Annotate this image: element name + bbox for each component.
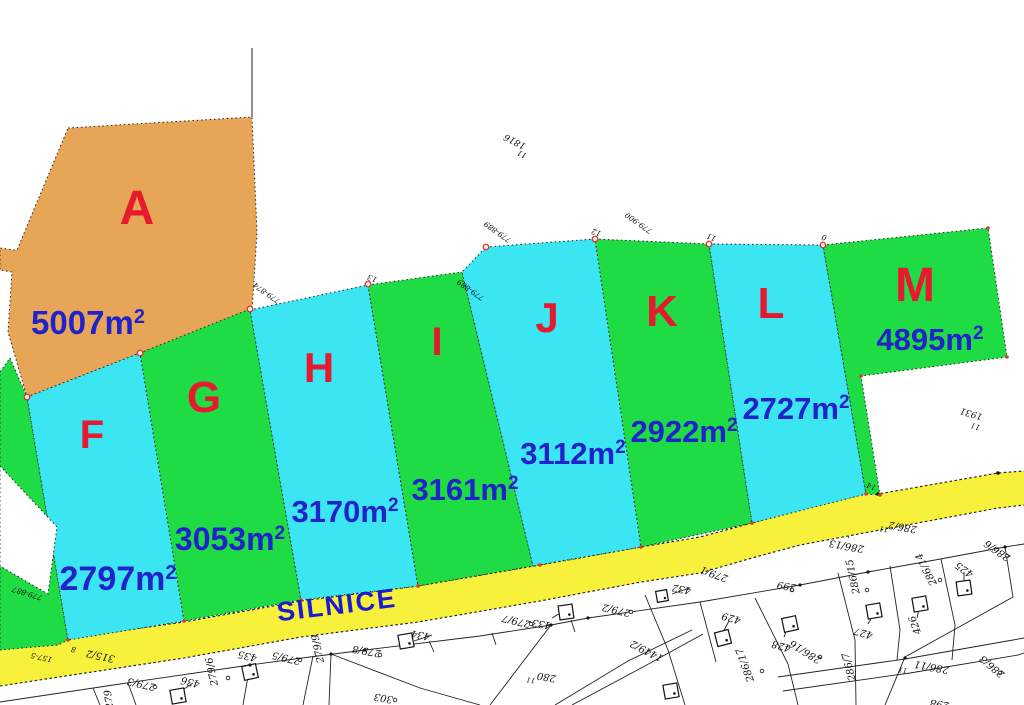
plot-i-letter: I — [431, 320, 442, 364]
cadastral-label: 286/6 — [982, 537, 1013, 563]
plot-k-area: 2922m2 — [630, 414, 737, 449]
cadastral-label: 429 — [720, 609, 743, 625]
survey-mark: 12 — [590, 226, 602, 238]
cadastral-label: 279 — [103, 689, 117, 705]
cadastral-label: 435 — [237, 648, 259, 663]
plot-g-letter: G — [187, 373, 221, 422]
plot-h-area: 3170m2 — [291, 494, 398, 529]
plot-m-letter: M — [895, 259, 935, 312]
cadastral-label: 427 — [852, 624, 875, 640]
cadastral-label: 286/13 — [828, 537, 866, 554]
plot-j-area: 3112m2 — [520, 436, 625, 471]
survey-mark: 779-900 — [623, 210, 654, 235]
survey-mark: 11 — [705, 231, 717, 243]
plot-a-letter: A — [120, 182, 155, 235]
cadastral-label: 286/3 — [978, 652, 1008, 680]
cadastral-map: 1816 11 779-889 779-889 12 779-900 11 0 … — [0, 0, 1024, 705]
cadastral-label: 425 — [954, 559, 977, 580]
plot-l-area: 2727m2 — [742, 391, 849, 426]
cadastral-label: 433 — [531, 616, 553, 630]
survey-mark: 779-874 — [251, 280, 282, 305]
cadastral-label: 434 — [410, 627, 432, 641]
survey-mark: 13 — [366, 272, 378, 284]
plot-i-area: 3161m2 — [411, 472, 518, 507]
cadastral-label: 299 — [776, 578, 798, 592]
cadastral-label: 286/14 — [914, 551, 940, 588]
plot-h-letter: H — [304, 344, 334, 391]
cadastral-label: 279/7 — [501, 612, 533, 630]
cadastral-label: 11 — [879, 524, 889, 533]
plot-m-area: 4895m2 — [876, 322, 983, 357]
cadastral-label: 286/17 — [734, 646, 757, 684]
cadastral-label: 286/11 — [913, 658, 951, 675]
cadastral-label: 286/7 — [840, 651, 859, 683]
cadastral-label: 298 — [929, 696, 951, 705]
cadastral-label: 1449/2 — [629, 637, 665, 663]
cadastral-label: 432 — [671, 581, 693, 595]
cadastral-label: 11 — [898, 665, 908, 674]
cadastral-label: 303 — [373, 690, 394, 704]
plot-f-letter: F — [80, 413, 104, 457]
cadastral-label: 279/6 — [204, 656, 221, 688]
plot-l-letter: L — [758, 279, 785, 328]
cadastral-label: 436 — [179, 674, 202, 689]
survey-mark: 0 — [820, 232, 828, 242]
plot-k-letter: K — [646, 287, 678, 336]
cadastral-label: 286/16 — [787, 637, 824, 666]
cadastral-label: 11 — [526, 675, 536, 684]
survey-mark: 11 — [516, 148, 529, 160]
survey-mark: 11 — [969, 421, 981, 432]
cadastral-label: 426 — [907, 613, 924, 636]
cadastral-label: 286/15 — [845, 558, 863, 596]
survey-mark: 1931 — [959, 405, 984, 421]
cadastral-label: 279/5 — [271, 649, 303, 666]
plot-g-area: 3053m2 — [175, 521, 285, 557]
plot-a-area: 5007m2 — [31, 304, 145, 341]
plot-f-area: 2797m2 — [60, 560, 177, 598]
survey-mark: 1816 — [502, 131, 527, 150]
cadastral-label: 280 — [536, 669, 558, 683]
cadastral-label: 279/8 — [351, 643, 382, 659]
survey-mark: 779-889 — [482, 219, 513, 244]
plot-j-letter: J — [535, 294, 558, 341]
